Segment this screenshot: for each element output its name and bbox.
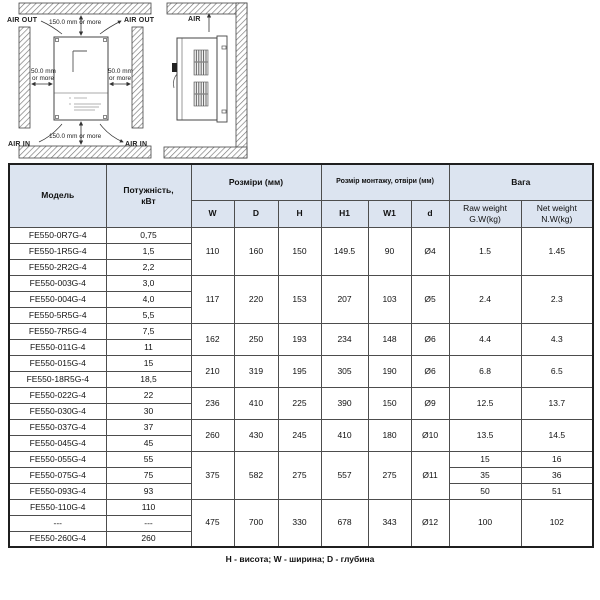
- depth-cell: 430: [234, 419, 278, 451]
- raw-weight-cell: 100: [449, 499, 521, 547]
- net-weight-cell: 6.5: [521, 355, 593, 387]
- table-row: FE550-003G-43,0117220153207103Ø52.42.3: [9, 275, 593, 291]
- power-cell: 22: [106, 387, 191, 403]
- mount-h1-cell: 390: [321, 387, 368, 419]
- power-cell: 110: [106, 499, 191, 515]
- depth-cell: 220: [234, 275, 278, 323]
- raw-weight-cell: 12.5: [449, 387, 521, 419]
- col-header-d: D: [234, 200, 278, 227]
- model-cell: FE550-022G-4: [9, 387, 106, 403]
- col-header-w: W: [191, 200, 234, 227]
- hole-diameter-cell: Ø9: [411, 387, 449, 419]
- height-cell: 193: [278, 323, 321, 355]
- col-group-mounting: Розмір монтажу, отвіри (мм): [321, 164, 449, 200]
- net-weight-cell: 36: [521, 467, 593, 483]
- air-in-right-label: AIR IN: [125, 141, 147, 148]
- wall-right: [236, 3, 247, 158]
- air-out-right-label: AIR OUT: [124, 17, 155, 24]
- net-weight-cell: 16: [521, 451, 593, 467]
- table-row: FE550-037G-437260430245410180Ø1013.514.5: [9, 419, 593, 435]
- model-cell: FE550-18R5G-4: [9, 371, 106, 387]
- raw-weight-cell: 4.4: [449, 323, 521, 355]
- hole-diameter-cell: Ø11: [411, 451, 449, 499]
- wall-top: [19, 3, 151, 14]
- mount-w1-cell: 190: [368, 355, 411, 387]
- power-cell: 4,0: [106, 291, 191, 307]
- height-cell: 150: [278, 227, 321, 275]
- right-clearance-label2: or more: [109, 75, 131, 82]
- power-cell: 18,5: [106, 371, 191, 387]
- depth-cell: 700: [234, 499, 278, 547]
- mount-h1-cell: 305: [321, 355, 368, 387]
- col-header-h1: H1: [321, 200, 368, 227]
- raw-weight-cell: 2.4: [449, 275, 521, 323]
- depth-cell: 160: [234, 227, 278, 275]
- power-cell: 93: [106, 483, 191, 499]
- model-cell: FE550-011G-4: [9, 339, 106, 355]
- col-header-hole: d: [411, 200, 449, 227]
- power-cell: 45: [106, 435, 191, 451]
- front-clearance-diagram: AIR OUT AIR OUT 150.0 mm or more 50.0 mm…: [5, 0, 157, 163]
- air-label: AIR: [188, 16, 201, 23]
- hole-diameter-cell: Ø5: [411, 275, 449, 323]
- hole-diameter-cell: Ø4: [411, 227, 449, 275]
- raw-weight-cell: 13.5: [449, 419, 521, 451]
- mount-h1-cell: 149.5: [321, 227, 368, 275]
- mount-w1-cell: 103: [368, 275, 411, 323]
- net-weight-cell: 4.3: [521, 323, 593, 355]
- mount-w1-cell: 150: [368, 387, 411, 419]
- width-cell: 260: [191, 419, 234, 451]
- col-header-h: H: [278, 200, 321, 227]
- raw-weight-cell: 50: [449, 483, 521, 499]
- raw-weight-cell: 6.8: [449, 355, 521, 387]
- mount-w1-cell: 275: [368, 451, 411, 499]
- left-clearance-label2: or more: [32, 75, 54, 82]
- mount-h1-cell: 234: [321, 323, 368, 355]
- inverter-front-view: [54, 37, 108, 120]
- depth-cell: 319: [234, 355, 278, 387]
- power-cell: 5,5: [106, 307, 191, 323]
- net-weight-cell: 1.45: [521, 227, 593, 275]
- installation-diagrams: AIR OUT AIR OUT 150.0 mm or more 50.0 mm…: [0, 0, 600, 163]
- inverter-side-view: [172, 36, 227, 122]
- cable-line: [173, 74, 177, 88]
- mount-w1-cell: 343: [368, 499, 411, 547]
- model-cell: FE550-2R2G-4: [9, 259, 106, 275]
- wall-right: [132, 27, 143, 128]
- model-cell: FE550-037G-4: [9, 419, 106, 435]
- mount-h1-cell: 678: [321, 499, 368, 547]
- power-cell: 1,5: [106, 243, 191, 259]
- model-cell: FE550-003G-4: [9, 275, 106, 291]
- power-cell: 7,5: [106, 323, 191, 339]
- model-cell: FE550-055G-4: [9, 451, 106, 467]
- raw-weight-cell: 15: [449, 451, 521, 467]
- mount-w1-cell: 180: [368, 419, 411, 451]
- col-group-dimensions: Розміри (мм): [191, 164, 321, 200]
- power-cell: 37: [106, 419, 191, 435]
- table-row: FE550-055G-455375582275557275Ø111516: [9, 451, 593, 467]
- model-cell: FE550-1R5G-4: [9, 243, 106, 259]
- table-row: FE550-110G-4110475700330678343Ø12100102: [9, 499, 593, 515]
- table-row: FE550-7R5G-47,5162250193234148Ø64.44.3: [9, 323, 593, 339]
- wall-top: [167, 3, 247, 14]
- power-cell: 55: [106, 451, 191, 467]
- cable-connector: [172, 63, 177, 72]
- power-cell: 0,75: [106, 227, 191, 243]
- model-cell: FE550-045G-4: [9, 435, 106, 451]
- power-header-line2: кВт: [141, 196, 155, 206]
- header-row-groups: Модель Потужність,кВт Розміри (мм) Розмі…: [9, 164, 593, 200]
- air-out-left-label: AIR OUT: [7, 17, 38, 24]
- raw-weight-line1: Raw weight: [463, 203, 507, 213]
- model-cell: FE550-015G-4: [9, 355, 106, 371]
- height-cell: 225: [278, 387, 321, 419]
- hole-diameter-cell: Ø6: [411, 323, 449, 355]
- depth-cell: 410: [234, 387, 278, 419]
- power-cell: 2,2: [106, 259, 191, 275]
- power-cell: 260: [106, 531, 191, 547]
- model-cell: FE550-075G-4: [9, 467, 106, 483]
- model-cell: FE550-004G-4: [9, 291, 106, 307]
- raw-weight-line2: G.W(kg): [469, 214, 501, 224]
- col-header-power: Потужність,кВт: [106, 164, 191, 227]
- width-cell: 236: [191, 387, 234, 419]
- width-cell: 475: [191, 499, 234, 547]
- height-cell: 153: [278, 275, 321, 323]
- model-cell: FE550-110G-4: [9, 499, 106, 515]
- left-clearance-label: 50.0 mm: [31, 68, 56, 75]
- mount-h1-cell: 557: [321, 451, 368, 499]
- model-cell: FE550-093G-4: [9, 483, 106, 499]
- width-cell: 110: [191, 227, 234, 275]
- power-cell: 3,0: [106, 275, 191, 291]
- power-cell: ---: [106, 515, 191, 531]
- height-cell: 275: [278, 451, 321, 499]
- col-header-net-weight: Net weightN.W(kg): [521, 200, 593, 227]
- raw-weight-cell: 1.5: [449, 227, 521, 275]
- wall-bottom: [164, 147, 247, 158]
- mount-w1-cell: 90: [368, 227, 411, 275]
- power-cell: 11: [106, 339, 191, 355]
- net-weight-cell: 102: [521, 499, 593, 547]
- width-cell: 210: [191, 355, 234, 387]
- model-cell: FE550-7R5G-4: [9, 323, 106, 339]
- hole-diameter-cell: Ø12: [411, 499, 449, 547]
- model-cell: FE550-0R7G-4: [9, 227, 106, 243]
- wall-left: [19, 27, 30, 128]
- table-row: FE550-015G-415210319195305190Ø66.86.5: [9, 355, 593, 371]
- col-header-w1: W1: [368, 200, 411, 227]
- col-group-weight: Вага: [449, 164, 593, 200]
- model-cell: FE550-260G-4: [9, 531, 106, 547]
- power-cell: 30: [106, 403, 191, 419]
- height-cell: 245: [278, 419, 321, 451]
- depth-cell: 250: [234, 323, 278, 355]
- net-weight-cell: 13.7: [521, 387, 593, 419]
- power-cell: 75: [106, 467, 191, 483]
- power-header-line1: Потужність,: [123, 185, 173, 195]
- width-cell: 375: [191, 451, 234, 499]
- width-cell: 117: [191, 275, 234, 323]
- table-row: FE550-022G-422236410225390150Ø912.513.7: [9, 387, 593, 403]
- spec-table: Модель Потужність,кВт Розміри (мм) Розмі…: [8, 163, 594, 548]
- side-view-diagram: AIR: [157, 0, 252, 163]
- col-header-model: Модель: [9, 164, 106, 227]
- depth-cell: 582: [234, 451, 278, 499]
- raw-weight-cell: 35: [449, 467, 521, 483]
- bottom-clearance-label: 150.0 mm or more: [49, 133, 102, 140]
- spec-table-body: FE550-0R7G-40,75110160150149.590Ø41.51.4…: [9, 227, 593, 547]
- height-cell: 195: [278, 355, 321, 387]
- hole-diameter-cell: Ø6: [411, 355, 449, 387]
- net-weight-cell: 14.5: [521, 419, 593, 451]
- net-weight-cell: 51: [521, 483, 593, 499]
- mount-h1-cell: 207: [321, 275, 368, 323]
- mount-w1-cell: 148: [368, 323, 411, 355]
- legend: Н - висота; W - ширина; D - глубина: [0, 554, 600, 564]
- top-clearance-label: 150.0 mm or more: [49, 19, 102, 26]
- table-row: FE550-0R7G-40,75110160150149.590Ø41.51.4…: [9, 227, 593, 243]
- right-clearance-label: 50.0 mm: [108, 68, 133, 75]
- net-weight-cell: 2.3: [521, 275, 593, 323]
- model-cell: ---: [9, 515, 106, 531]
- net-weight-line2: N.W(kg): [541, 214, 572, 224]
- hole-diameter-cell: Ø10: [411, 419, 449, 451]
- col-header-raw-weight: Raw weightG.W(kg): [449, 200, 521, 227]
- mount-h1-cell: 410: [321, 419, 368, 451]
- net-weight-line1: Net weight: [537, 203, 577, 213]
- air-in-left-label: AIR IN: [8, 141, 30, 148]
- power-cell: 15: [106, 355, 191, 371]
- height-cell: 330: [278, 499, 321, 547]
- model-cell: FE550-030G-4: [9, 403, 106, 419]
- width-cell: 162: [191, 323, 234, 355]
- model-cell: FE550-5R5G-4: [9, 307, 106, 323]
